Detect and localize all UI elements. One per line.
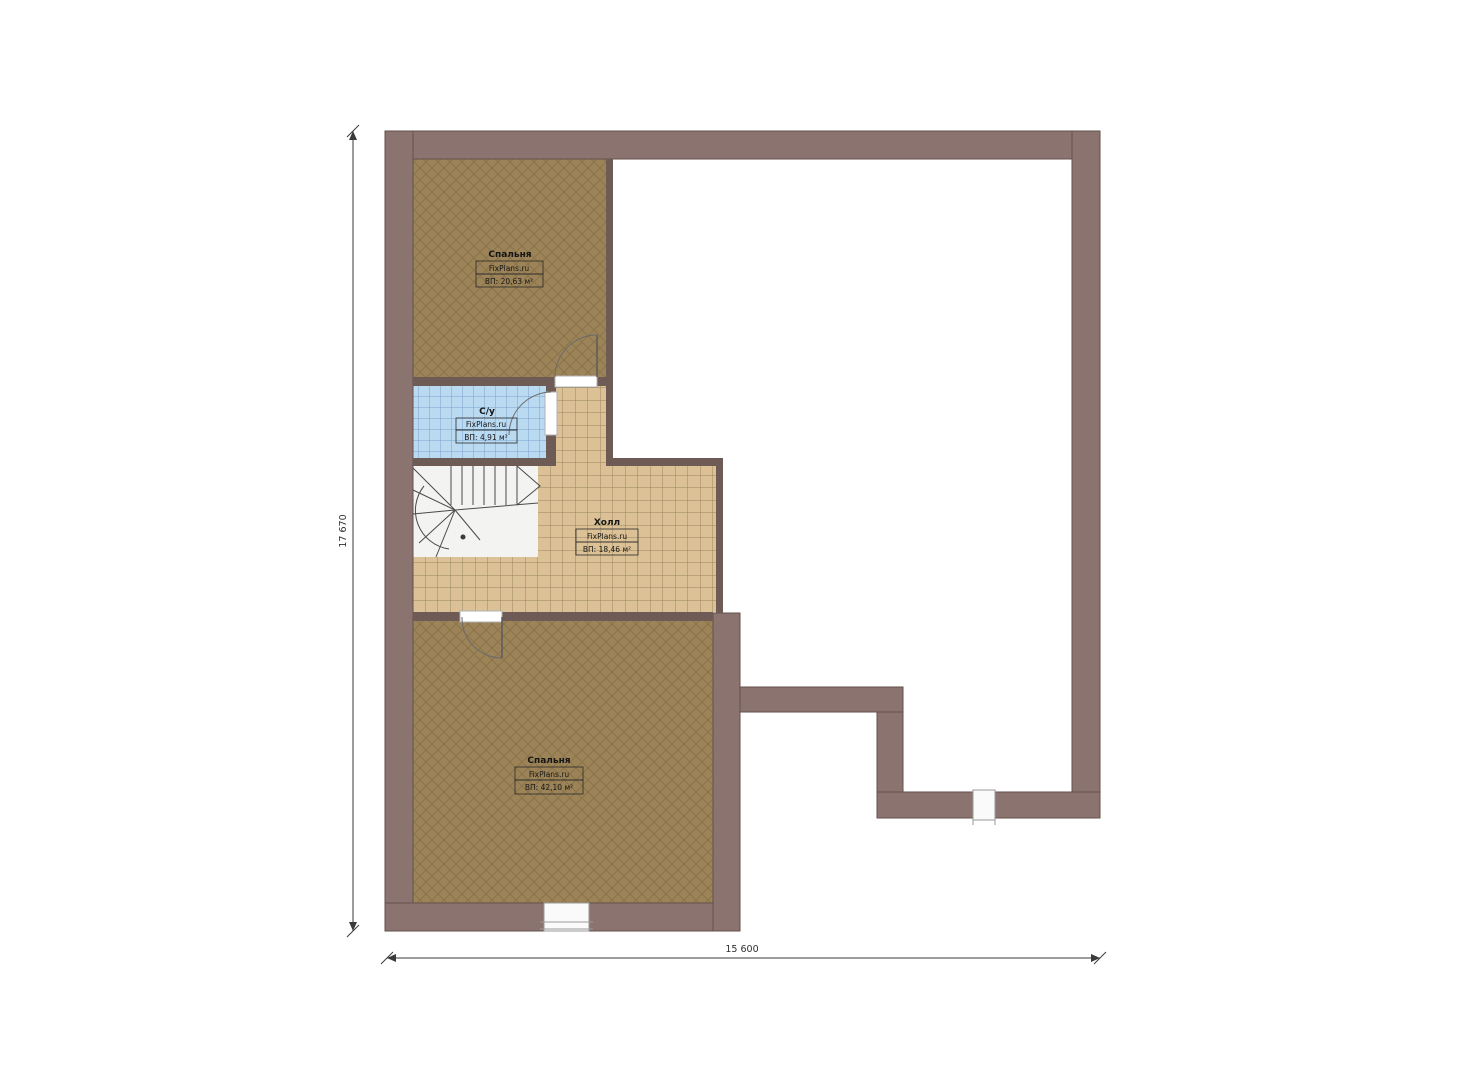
floor-plan-page: Спальня FixPlans.ru ВП: 20,63 м² С/у Fix… [0,0,1474,1080]
room-brand: FixPlans.ru [489,264,530,273]
wall-bath-east-b [546,435,556,462]
room-brand: FixPlans.ru [466,420,507,429]
wall-south-mid [740,687,903,712]
floor-plan-drawing: Спальня FixPlans.ru ВП: 20,63 м² С/у Fix… [0,0,1474,1080]
dimension-vertical: 17 670 [338,125,359,937]
dim-arrow-top [349,131,357,140]
wall-bedroom-top-south-b [597,377,613,386]
window-bedroom-bottom [540,903,593,931]
wall-bay-west [877,712,903,792]
dim-arrow-right [1091,954,1100,962]
room-brand: FixPlans.ru [587,532,628,541]
wall-right [1072,131,1100,818]
wall-hall-north-jog [606,458,723,466]
floor-hall-under-stairs [413,557,538,612]
wall-hall-south-a [413,612,460,621]
room-area: ВП: 18,46 м² [583,545,631,554]
dimension-width-value: 15 600 [725,944,758,955]
room-name: Спальня [527,756,570,766]
room-name: Холл [594,518,620,528]
wall-hall-south-b [502,612,713,621]
wall-bath-south [413,458,556,466]
stair-walk-dot [461,535,466,540]
wall-top [385,131,1100,159]
floor-hall-upper-strip [556,386,606,466]
wall-left [385,131,413,931]
room-brand: FixPlans.ru [529,770,570,779]
room-area: ВП: 4,91 м² [464,433,507,442]
room-name: Спальня [488,250,531,260]
wall-bedroom-top-east [606,159,613,459]
wall-bedroom-right [713,613,740,931]
window-bay [973,790,995,825]
floor-stairwell [413,466,538,557]
dim-arrow-bottom [349,922,357,931]
room-area: ВП: 20,63 м² [485,277,533,286]
room-name: С/у [479,407,495,417]
room-area: ВП: 42,10 м² [525,783,573,792]
dim-arrow-left [387,954,396,962]
wall-hall-east [716,458,723,613]
dimension-height-value: 17 670 [338,514,349,547]
wall-bedroom-top-south-a [413,377,555,386]
dimension-horizontal: 15 600 [381,944,1106,964]
